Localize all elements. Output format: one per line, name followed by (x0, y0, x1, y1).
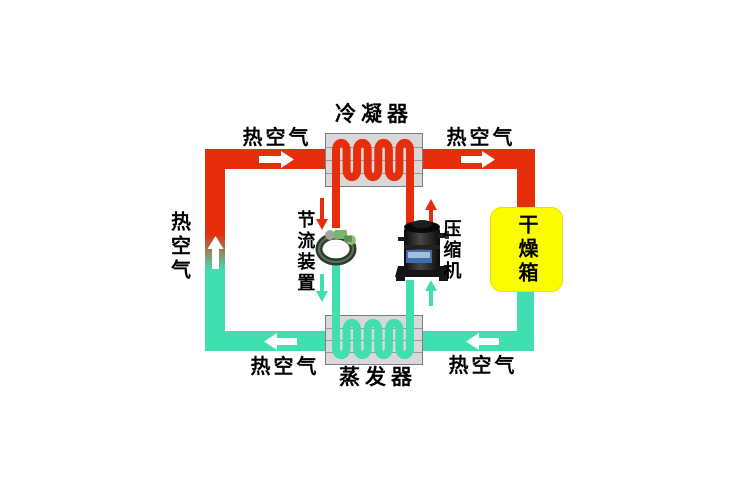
heat-pump-drying-diagram: 干燥箱 (0, 0, 750, 500)
condenser-label: 冷凝器 (335, 103, 413, 127)
throttle-device-icon (319, 230, 356, 262)
condenser-coil (336, 143, 410, 228)
hot-air-label-top-left: 热空气 (243, 127, 312, 150)
hot-air-label-bottom-left: 热空气 (251, 356, 320, 379)
air-arrow-right-top-left-icon (259, 151, 294, 168)
air-arrow-left-bottom-right-icon (466, 333, 499, 350)
throttle-device-label: 节流装置 (295, 210, 316, 294)
compressor-label: 压缩机 (441, 219, 462, 282)
diagram-overlay (0, 0, 750, 500)
refrigerant-arrow-down-cold-icon (316, 274, 328, 302)
hot-air-label-top-right: 热空气 (447, 127, 516, 150)
refrigerant-arrow-up-cold-icon (425, 280, 437, 306)
evaporator-label: 蒸发器 (339, 366, 417, 390)
refrigerant-arrow-down-hot-icon (316, 198, 328, 230)
hot-air-label-left: 热空气 (167, 211, 190, 283)
air-arrow-right-top-right-icon (461, 151, 495, 168)
air-arrow-up-left-icon (208, 236, 224, 269)
air-arrow-left-bottom-left-icon (264, 333, 297, 350)
hot-air-label-bottom-right: 热空气 (449, 355, 518, 378)
